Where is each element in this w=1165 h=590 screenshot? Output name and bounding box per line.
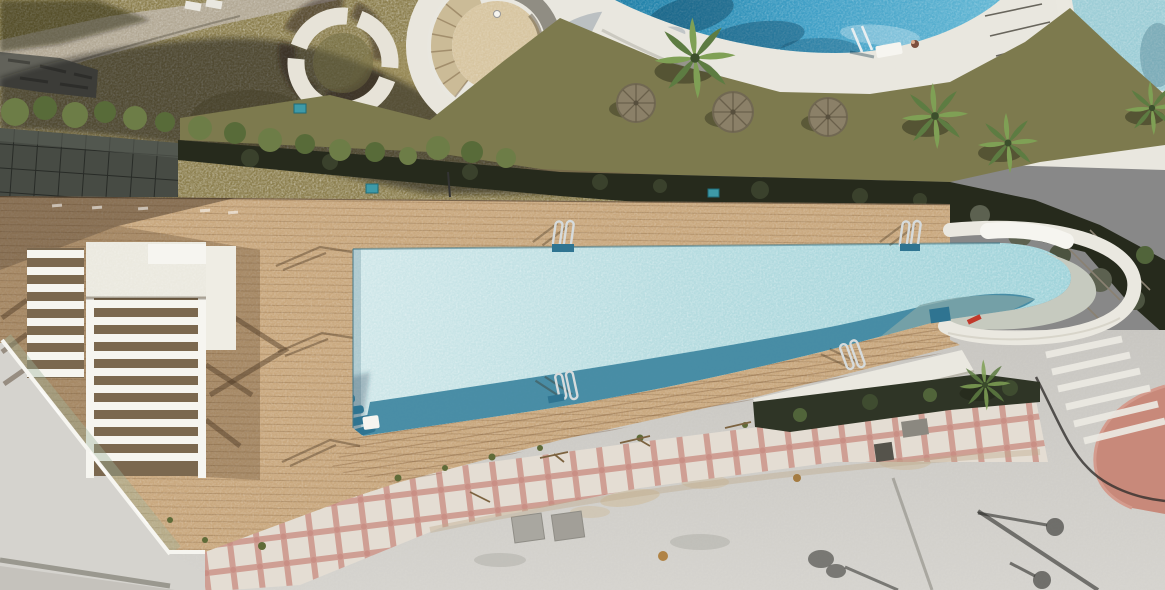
ladder-base [552, 244, 574, 252]
pool-sign [366, 184, 378, 193]
pool-sign [708, 189, 719, 197]
manhole-cover [511, 513, 544, 543]
pool-floater [362, 415, 380, 430]
ladder-base [900, 244, 920, 251]
dry-weed [658, 551, 668, 561]
pool-sign [294, 104, 306, 113]
manhole-cover [551, 511, 584, 541]
dry-weed [793, 474, 801, 482]
ladder-base [929, 307, 951, 324]
slatted-bench [27, 248, 84, 378]
scene-canvas [0, 0, 1165, 590]
utility-tile [874, 442, 894, 462]
pergola-side-panel [206, 246, 236, 350]
aerial-photo-pool-resort [0, 0, 1165, 590]
